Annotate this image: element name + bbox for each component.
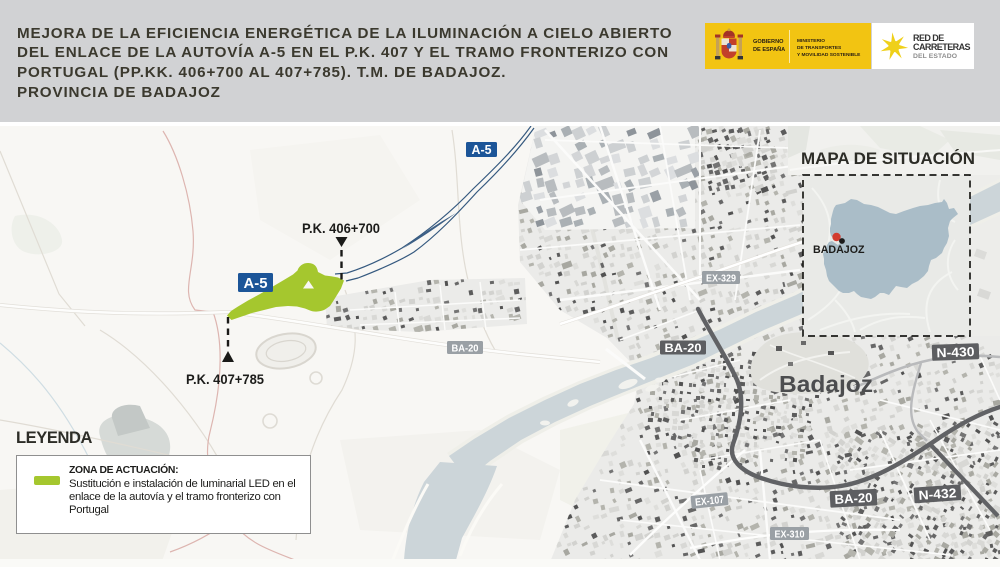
- svg-text:EX-329: EX-329: [706, 272, 736, 284]
- svg-text:N-432: N-432: [918, 485, 957, 503]
- svg-text:A-5: A-5: [244, 275, 268, 292]
- svg-text:BADAJOZ: BADAJOZ: [813, 244, 865, 256]
- svg-text:BA-20: BA-20: [665, 341, 702, 355]
- svg-text:P.K. 407+785: P.K. 407+785: [186, 371, 264, 387]
- svg-text:N-430: N-430: [936, 344, 975, 360]
- svg-text:EX-310: EX-310: [775, 528, 805, 540]
- svg-text:MAPA DE SITUACIÓN: MAPA DE SITUACIÓN: [801, 149, 975, 168]
- svg-text:P.K. 406+700: P.K. 406+700: [302, 220, 380, 236]
- svg-text:A-5: A-5: [472, 143, 492, 157]
- svg-text:Badajoz: Badajoz: [779, 371, 873, 397]
- svg-text:BA-20: BA-20: [452, 342, 479, 354]
- svg-text:BA-20: BA-20: [834, 490, 873, 507]
